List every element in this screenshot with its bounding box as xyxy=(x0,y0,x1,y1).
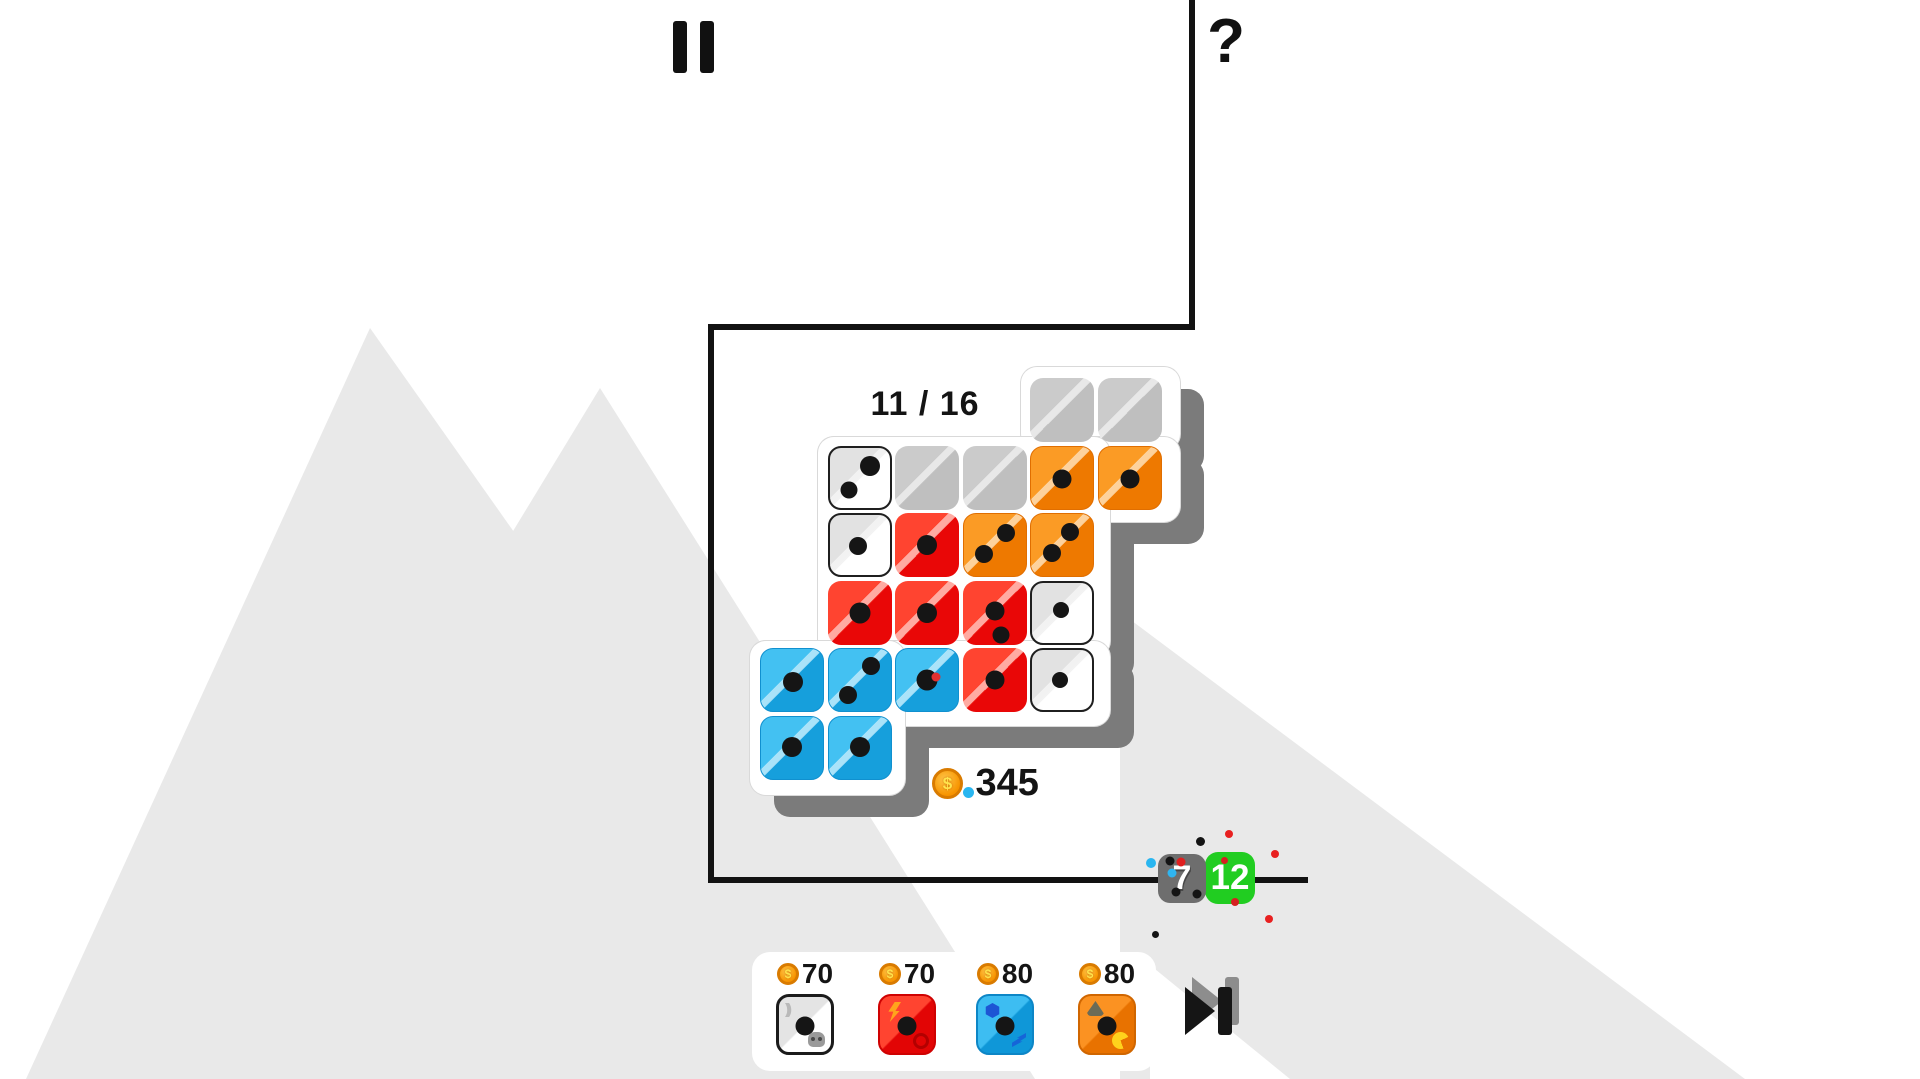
board-die-white-r4c4[interactable] xyxy=(1030,648,1094,712)
die-pip xyxy=(985,671,1004,690)
shop-item-white-die[interactable]: $ 70 ))) xyxy=(770,960,840,1066)
die-pip xyxy=(932,672,941,681)
die-pip xyxy=(917,603,937,623)
board-die-blue-r4c0[interactable] xyxy=(760,648,824,712)
die-pip xyxy=(783,672,803,692)
die-gloss xyxy=(829,649,891,711)
ring-icon xyxy=(913,1033,929,1049)
die-pip xyxy=(1061,523,1079,541)
board-die-white-r1c1[interactable] xyxy=(828,446,892,510)
die-pip xyxy=(1121,469,1140,488)
confetti-dot xyxy=(1196,837,1205,846)
confetti-dot xyxy=(1231,898,1239,906)
board-die-gray-r0c5 xyxy=(1098,378,1162,442)
hexagon-icon xyxy=(985,1003,1000,1018)
price-label: $ 80 xyxy=(970,960,1040,988)
die-pip xyxy=(862,657,880,675)
shop-item-blue-die[interactable]: $ 80 xyxy=(970,960,1040,1066)
coin-icon: $ xyxy=(879,963,901,985)
shop-die-orange[interactable] xyxy=(1078,994,1136,1055)
board-die-orange-r2c4[interactable] xyxy=(1030,513,1094,577)
board-die-blue-r4c1[interactable] xyxy=(828,648,892,712)
die-gloss xyxy=(830,448,890,508)
zigzag-icon xyxy=(1012,1033,1026,1047)
badge-mini-pip xyxy=(1177,857,1186,866)
coin-icon: $ xyxy=(977,963,999,985)
confetti-dot xyxy=(1271,850,1279,858)
board-die-gray-r1c3 xyxy=(963,446,1027,510)
die-gloss xyxy=(964,514,1026,576)
badge-mini-pip xyxy=(1165,857,1174,866)
shop-die-red[interactable] xyxy=(878,994,936,1055)
board-die-red-r3c3[interactable] xyxy=(963,581,1027,645)
price-label: $ 70 xyxy=(872,960,942,988)
board-die-gray-r0c4 xyxy=(1030,378,1094,442)
board-die-orange-r1c5[interactable] xyxy=(1098,446,1162,510)
die-pip xyxy=(993,627,1010,644)
skip-turn-button[interactable] xyxy=(1178,972,1242,1048)
die-gloss xyxy=(895,446,959,510)
confetti-dot xyxy=(1265,915,1273,923)
board-die-red-r4c3[interactable] xyxy=(963,648,1027,712)
badge-mini-pip xyxy=(1172,888,1181,897)
fan-icon xyxy=(1112,1032,1129,1049)
price-label: $ 70 xyxy=(770,960,840,988)
die-pip xyxy=(898,1016,917,1035)
board-die-orange-r1c4[interactable] xyxy=(1030,446,1094,510)
badge-mini-pip xyxy=(1168,868,1177,877)
price-value: 70 xyxy=(802,958,833,990)
die-pip xyxy=(1043,544,1061,562)
badge-mini-pip xyxy=(1193,890,1202,899)
wind-icon: ))) xyxy=(785,1001,788,1018)
coin-balance-value: 345 xyxy=(975,762,1038,805)
board-die-orange-r2c3[interactable] xyxy=(963,513,1027,577)
blue-spark-dot xyxy=(963,787,974,798)
die-pip xyxy=(917,535,937,555)
die-gloss xyxy=(963,446,1027,510)
shop-item-orange-die[interactable]: $ 80 xyxy=(1072,960,1142,1066)
die-pip xyxy=(996,1016,1015,1035)
confetti-dot xyxy=(1152,931,1159,938)
confetti-dot xyxy=(1221,857,1228,864)
coin-balance: $ 345 xyxy=(932,762,1039,802)
game-screen: { "hud": { "pause_label": "pause", "help… xyxy=(0,0,1920,1079)
price-label: $ 80 xyxy=(1072,960,1142,988)
board-die-white-r3c4[interactable] xyxy=(1030,581,1094,645)
die-pip xyxy=(782,737,802,757)
pause-button[interactable] xyxy=(660,12,730,82)
playfield-border-left xyxy=(708,324,714,883)
skip-icon xyxy=(1218,987,1232,1035)
die-pip xyxy=(1098,1016,1117,1035)
die-pip xyxy=(850,737,870,757)
coin-icon: $ xyxy=(1079,963,1101,985)
round-score-value: 12 xyxy=(1205,852,1255,904)
skip-icon xyxy=(1185,987,1215,1035)
die-pip xyxy=(1053,602,1069,618)
coin-icon: $ xyxy=(932,768,963,799)
die-gloss xyxy=(1031,514,1093,576)
die-pip xyxy=(975,545,993,563)
board-die-blue-r4c2[interactable] xyxy=(895,648,959,712)
playfield-border-top xyxy=(708,324,1195,330)
shop-die-blue[interactable] xyxy=(976,994,1034,1055)
board-die-red-r2c2[interactable] xyxy=(895,513,959,577)
rock-icon xyxy=(1087,1001,1104,1016)
die-pip xyxy=(1052,672,1068,688)
die-pip xyxy=(985,601,1004,620)
price-value: 80 xyxy=(1104,958,1135,990)
dice-counter-label: 11 / 16 xyxy=(845,385,1005,424)
price-value: 70 xyxy=(904,958,935,990)
die-gloss xyxy=(1098,378,1162,442)
board-die-white-r2c1[interactable] xyxy=(828,513,892,577)
board-die-gray-r1c2 xyxy=(895,446,959,510)
board-die-red-r3c1[interactable] xyxy=(828,581,892,645)
board-die-blue-r5c0[interactable] xyxy=(760,716,824,780)
pause-icon xyxy=(700,21,714,73)
die-pip xyxy=(841,481,858,498)
help-button[interactable]: ? xyxy=(1198,2,1254,82)
die-pip xyxy=(849,537,867,555)
die-gloss xyxy=(1030,378,1094,442)
die-pip xyxy=(849,602,870,623)
die-pip xyxy=(1053,469,1072,488)
board-die-blue-r5c1[interactable] xyxy=(828,716,892,780)
rolled-die-badge: 7 xyxy=(1158,854,1206,903)
pause-icon xyxy=(673,21,687,73)
skull-icon xyxy=(808,1032,825,1047)
board-die-red-r3c2[interactable] xyxy=(895,581,959,645)
confetti-dot xyxy=(1225,830,1233,838)
round-score-badge: 12 xyxy=(1205,852,1255,904)
confetti-dot xyxy=(1146,858,1156,868)
shop-item-red-die[interactable]: $ 70 xyxy=(872,960,942,1066)
die-pip xyxy=(860,456,880,476)
die-pip xyxy=(839,686,857,704)
coin-icon: $ xyxy=(777,963,799,985)
playfield-border-right xyxy=(1189,0,1195,330)
shop-die-white[interactable]: ))) xyxy=(776,994,834,1055)
price-value: 80 xyxy=(1002,958,1033,990)
die-pip xyxy=(997,524,1015,542)
